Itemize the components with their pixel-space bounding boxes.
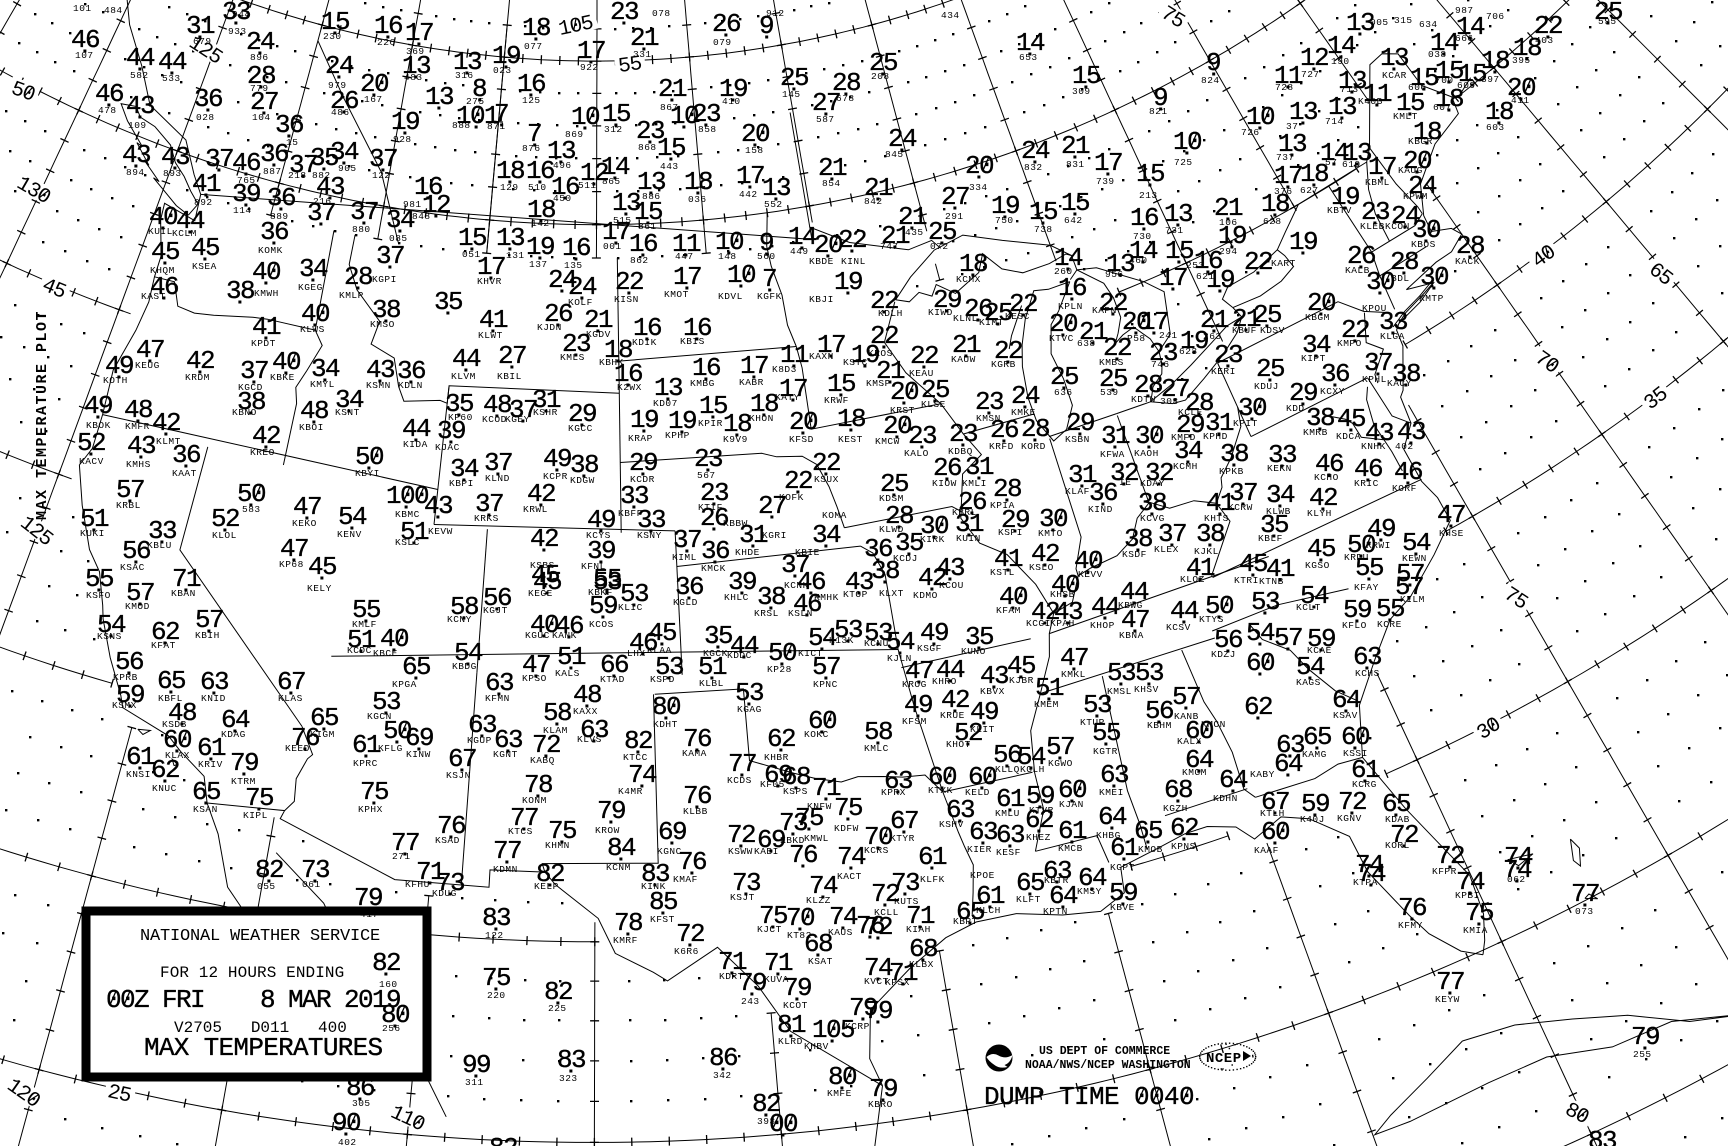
- svg-text:KCVG: KCVG: [1140, 513, 1165, 524]
- svg-text:148: 148: [718, 251, 737, 262]
- svg-text:KSBS: KSBS: [530, 560, 555, 571]
- svg-text:KBUF: KBUF: [1232, 325, 1257, 336]
- svg-text:KCHS: KCHS: [1355, 668, 1380, 679]
- svg-text:9: 9: [1206, 48, 1220, 78]
- svg-text:KBKF: KBKF: [588, 587, 613, 598]
- svg-text:073: 073: [1575, 906, 1594, 917]
- svg-text:636: 636: [1054, 387, 1073, 398]
- svg-text:57: 57: [1325, 157, 1337, 168]
- svg-text:896: 896: [250, 52, 269, 63]
- svg-text:KSMN: KSMN: [366, 380, 391, 391]
- svg-text:63: 63: [996, 820, 1024, 850]
- svg-text:KINL: KINL: [841, 256, 866, 267]
- svg-text:KINW: KINW: [406, 749, 431, 760]
- svg-text:18: 18: [684, 167, 712, 197]
- svg-text:23: 23: [949, 419, 977, 449]
- svg-text:KEED: KEED: [285, 743, 310, 754]
- svg-text:KRWF: KRWF: [824, 395, 849, 406]
- svg-text:46: 46: [232, 148, 260, 178]
- svg-text:KGCC: KGCC: [568, 423, 593, 434]
- svg-text:22: 22: [838, 225, 866, 255]
- svg-text:KMFR: KMFR: [125, 421, 150, 432]
- svg-text:KBKE: KBKE: [270, 372, 295, 383]
- svg-text:20: 20: [890, 377, 918, 407]
- svg-text:987: 987: [1455, 5, 1474, 16]
- svg-text:KNID: KNID: [201, 693, 226, 704]
- svg-text:KJDN: KJDN: [537, 322, 562, 333]
- svg-text:KAXX: KAXX: [573, 706, 598, 717]
- svg-text:37: 37: [673, 525, 701, 555]
- svg-text:KPHL: KPHL: [1362, 374, 1387, 385]
- svg-text:KLAM: KLAM: [543, 725, 568, 736]
- svg-text:18: 18: [837, 404, 865, 434]
- svg-text:79: 79: [1631, 1022, 1659, 1052]
- svg-text:KSBN: KSBN: [1065, 434, 1090, 445]
- svg-text:13: 13: [496, 223, 524, 253]
- svg-text:KHBR: KHBR: [764, 752, 789, 763]
- svg-text:KFAT: KFAT: [151, 640, 176, 651]
- svg-text:KTVC: KTVC: [1049, 333, 1074, 344]
- svg-text:271: 271: [392, 851, 411, 862]
- svg-text:00Z FRI 8 MAR 2019: 00Z FRI 8 MAR 2019: [106, 985, 400, 1015]
- svg-text:KONM: KONM: [522, 795, 547, 806]
- svg-text:KFLO: KFLO: [1342, 620, 1367, 631]
- svg-text:KDCA: KDCA: [1336, 431, 1361, 442]
- svg-text:KGUP: KGUP: [467, 735, 492, 746]
- svg-text:16: 16: [562, 233, 590, 263]
- svg-text:KCMH: KCMH: [1173, 461, 1198, 472]
- svg-text:K6R6: K6R6: [674, 946, 699, 957]
- svg-text:038: 038: [1428, 49, 1447, 60]
- svg-text:KMOB: KMOB: [1138, 844, 1163, 855]
- svg-text:KMLS: KMLS: [560, 352, 585, 363]
- svg-text:KCGI: KCGI: [1026, 618, 1051, 629]
- svg-text:933: 933: [228, 26, 247, 37]
- svg-text:KMLI: KMLI: [962, 478, 987, 489]
- svg-text:34: 34: [299, 254, 328, 284]
- svg-text:KELP: KELP: [534, 881, 559, 892]
- svg-text:K8D3: K8D3: [772, 364, 797, 375]
- svg-text:443: 443: [660, 161, 679, 172]
- svg-text:KPKB: KPKB: [1219, 466, 1244, 477]
- svg-text:739: 739: [1096, 176, 1115, 187]
- svg-text:868: 868: [638, 142, 657, 153]
- svg-text:KUKI: KUKI: [80, 528, 105, 539]
- svg-text:90: 90: [332, 1108, 360, 1138]
- svg-text:KMIA: KMIA: [1463, 925, 1488, 936]
- svg-text:KGCD: KGCD: [238, 382, 263, 393]
- svg-text:62: 62: [1244, 692, 1272, 722]
- svg-text:KDUG: KDUG: [432, 888, 457, 899]
- svg-text:67: 67: [890, 806, 918, 836]
- svg-text:KMBG: KMBG: [690, 378, 715, 389]
- svg-text:606: 606: [1408, 82, 1427, 93]
- svg-text:KBJI: KBJI: [809, 294, 834, 305]
- svg-text:30: 30: [1135, 421, 1163, 451]
- svg-text:KRKS: KRKS: [474, 513, 499, 524]
- svg-text:KSPD: KSPD: [650, 674, 675, 685]
- svg-text:61: 61: [918, 842, 947, 872]
- svg-text:KTRI: KTRI: [1234, 575, 1259, 586]
- svg-text:KHSB: KHSB: [1050, 589, 1075, 600]
- svg-text:KACT: KACT: [837, 871, 862, 882]
- svg-text:KIWD: KIWD: [928, 307, 953, 318]
- svg-text:P58: P58: [1127, 333, 1146, 344]
- svg-text:24: 24: [325, 51, 354, 81]
- svg-text:871: 871: [487, 121, 506, 132]
- svg-text:KTUP: KTUP: [1080, 717, 1105, 728]
- svg-text:KSWW: KSWW: [728, 846, 753, 857]
- svg-text:726: 726: [1241, 127, 1260, 138]
- svg-text:KCOS: KCOS: [589, 619, 614, 630]
- svg-text:KMWH: KMWH: [254, 288, 279, 299]
- svg-text:460: 460: [1129, 255, 1148, 266]
- svg-text:44: 44: [1091, 592, 1120, 622]
- svg-text:KOMK: KOMK: [258, 245, 283, 256]
- svg-text:KSNY: KSNY: [637, 530, 662, 541]
- svg-text:779: 779: [250, 83, 269, 94]
- svg-text:KSAD: KSAD: [435, 835, 460, 846]
- svg-text:609: 609: [1457, 80, 1476, 91]
- svg-text:KLNL: KLNL: [953, 313, 978, 324]
- svg-text:KCOT: KCOT: [783, 1000, 808, 1011]
- svg-text:44: 44: [452, 344, 481, 374]
- svg-text:26: 26: [712, 9, 740, 39]
- svg-text:KCRG: KCRG: [1352, 779, 1377, 790]
- svg-text:KFAM: KFAM: [996, 605, 1021, 616]
- svg-text:KCYS: KCYS: [586, 530, 611, 541]
- svg-text:KPNC: KPNC: [813, 679, 838, 690]
- svg-text:208: 208: [871, 71, 890, 82]
- svg-text:894: 894: [126, 167, 145, 178]
- svg-text:27: 27: [498, 341, 526, 371]
- svg-text:IE: IE: [1119, 477, 1131, 488]
- svg-text:552: 552: [764, 199, 783, 210]
- svg-text:KAGS: KAGS: [1296, 677, 1321, 688]
- svg-text:KBRL: KBRL: [952, 507, 977, 518]
- svg-text:137: 137: [529, 259, 548, 270]
- svg-text:KLOL: KLOL: [212, 530, 237, 541]
- svg-text:323: 323: [559, 1073, 578, 1084]
- svg-text:KDSM: KDSM: [879, 493, 904, 504]
- svg-text:20: 20: [965, 151, 993, 181]
- svg-text:KELD: KELD: [965, 787, 990, 798]
- svg-text:KLFT: KLFT: [1016, 894, 1041, 905]
- svg-text:956: 956: [1105, 269, 1124, 280]
- svg-text:KCDJ: KCDJ: [893, 553, 918, 564]
- svg-text:45: 45: [1337, 404, 1365, 434]
- svg-text:53: 53: [1251, 587, 1279, 617]
- svg-text:539: 539: [1100, 387, 1119, 398]
- svg-text:055: 055: [257, 881, 276, 892]
- svg-text:979: 979: [328, 80, 347, 91]
- svg-text:KHBV: KHBV: [804, 1041, 829, 1052]
- svg-text:KCHO: KCHO: [1314, 472, 1339, 483]
- svg-text:642: 642: [1064, 215, 1083, 226]
- svg-text:KHBG: KHBG: [1096, 830, 1121, 841]
- svg-text:KATY: KATY: [775, 392, 800, 403]
- svg-text:KBOI: KBOI: [299, 422, 324, 433]
- svg-text:KMEI: KMEI: [1099, 787, 1124, 798]
- svg-text:KGFK: KGFK: [757, 291, 782, 302]
- svg-text:74: 74: [837, 842, 866, 872]
- svg-text:560: 560: [757, 251, 776, 262]
- svg-text:99: 99: [462, 1050, 490, 1080]
- svg-text:109: 109: [128, 120, 147, 131]
- svg-text:KPDT: KPDT: [251, 338, 276, 349]
- svg-text:447: 447: [675, 251, 694, 262]
- svg-text:KGPI: KGPI: [372, 274, 397, 285]
- svg-text:65: 65: [192, 777, 220, 807]
- svg-text:72: 72: [676, 919, 704, 949]
- svg-text:KHSE: KHSE: [1439, 528, 1464, 539]
- svg-text:KLWT: KLWT: [478, 330, 503, 341]
- svg-text:KRDM: KRDM: [185, 372, 210, 383]
- svg-text:KPWM: KPWM: [1403, 191, 1428, 202]
- svg-text:KBGM: KBGM: [1305, 312, 1330, 323]
- svg-text:842: 842: [864, 196, 883, 207]
- svg-text:US DEPT OF COMMERCE: US DEPT OF COMMERCE: [1039, 1045, 1170, 1058]
- svg-text:638: 638: [1077, 338, 1096, 349]
- svg-text:905: 905: [338, 163, 357, 174]
- svg-text:KIRK: KIRK: [920, 534, 945, 545]
- svg-text:44: 44: [126, 43, 155, 73]
- svg-text:KEAU: KEAU: [909, 368, 934, 379]
- svg-text:KLVM: KLVM: [451, 371, 476, 382]
- svg-text:KPBI: KPBI: [1455, 890, 1480, 901]
- svg-text:79: 79: [597, 796, 625, 826]
- svg-text:KCNU: KCNU: [864, 638, 889, 649]
- svg-text:30: 30: [1366, 267, 1394, 297]
- svg-text:397: 397: [1481, 74, 1500, 85]
- svg-text:KDGW: KDGW: [570, 475, 595, 486]
- svg-text:583: 583: [242, 504, 261, 515]
- svg-text:K40J: K40J: [1300, 814, 1325, 825]
- svg-text:KCNM: KCNM: [606, 862, 631, 873]
- svg-text:KRBL: KRBL: [116, 500, 141, 511]
- svg-text:KRFD: KRFD: [989, 441, 1014, 452]
- svg-text:65: 65: [1134, 816, 1162, 846]
- svg-text:KPTN: KPTN: [1043, 906, 1068, 917]
- svg-text:KGLD: KGLD: [673, 597, 698, 608]
- svg-text:77: 77: [493, 836, 521, 866]
- svg-text:062: 062: [1507, 874, 1526, 885]
- svg-text:83: 83: [557, 1045, 585, 1075]
- svg-text:KIAH: KIAH: [906, 924, 931, 935]
- svg-text:KPLN: KPLN: [1058, 301, 1083, 312]
- svg-text:369: 369: [406, 46, 425, 57]
- svg-text:10: 10: [727, 260, 755, 290]
- svg-text:15: 15: [1136, 159, 1164, 189]
- svg-text:28: 28: [344, 262, 372, 292]
- svg-text:KCMX: KCMX: [956, 274, 981, 285]
- svg-text:KMCW: KMCW: [875, 436, 900, 447]
- svg-text:KRIC: KRIC: [1354, 478, 1379, 489]
- svg-text:KCLE: KCLE: [1178, 407, 1203, 418]
- svg-text:KUIL: KUIL: [148, 226, 173, 237]
- svg-text:243: 243: [741, 996, 760, 1007]
- svg-text:K9V9: K9V9: [723, 434, 748, 445]
- svg-text:KDVL: KDVL: [718, 291, 743, 302]
- svg-text:KHSV: KHSV: [1134, 684, 1159, 695]
- svg-text:085: 085: [389, 233, 408, 244]
- svg-text:KLMT: KLMT: [156, 436, 181, 447]
- svg-text:40: 40: [252, 257, 280, 287]
- svg-text:KMKE: KMKE: [1011, 407, 1036, 418]
- svg-text:129: 129: [500, 182, 519, 193]
- svg-text:831: 831: [1066, 159, 1085, 170]
- svg-text:KFLG: KFLG: [378, 743, 403, 754]
- svg-text:42: 42: [530, 524, 558, 554]
- svg-text:38: 38: [226, 276, 254, 306]
- svg-text:KMGM: KMGM: [1182, 767, 1207, 778]
- svg-text:KSTL: KSTL: [990, 567, 1015, 578]
- svg-text:028: 028: [196, 112, 215, 123]
- svg-text:17: 17: [1159, 263, 1187, 293]
- svg-text:KMTP: KMTP: [1419, 293, 1444, 304]
- svg-text:678: 678: [836, 93, 855, 104]
- svg-text:225: 225: [548, 1003, 567, 1014]
- svg-text:KLRD: KLRD: [778, 1036, 803, 1047]
- svg-text:41: 41: [192, 169, 221, 199]
- svg-text:KPIA: KPIA: [990, 500, 1015, 511]
- svg-text:75: 75: [1465, 898, 1493, 928]
- svg-text:17: 17: [405, 18, 433, 48]
- svg-text:483: 483: [404, 72, 423, 83]
- svg-text:KJAC: KJAC: [435, 442, 460, 453]
- svg-text:KSNS: KSNS: [97, 631, 122, 642]
- svg-text:241: 241: [1159, 330, 1178, 341]
- svg-text:KSJT: KSJT: [730, 892, 755, 903]
- svg-text:610: 610: [1342, 159, 1361, 170]
- svg-text:KMYL: KMYL: [310, 379, 335, 390]
- svg-text:122: 122: [485, 930, 504, 941]
- svg-text:KRST: KRST: [890, 405, 915, 416]
- svg-text:449: 449: [790, 246, 809, 257]
- svg-text:KLOZ: KLOZ: [1180, 574, 1205, 585]
- svg-text:KIGM: KIGM: [310, 729, 335, 740]
- svg-text:922: 922: [580, 62, 599, 73]
- svg-text:KSPS: KSPS: [783, 786, 808, 797]
- svg-text:KBWG: KBWG: [1118, 600, 1143, 611]
- svg-text:218: 218: [288, 170, 307, 181]
- svg-text:KSTC: KSTC: [843, 357, 868, 368]
- svg-text:510: 510: [528, 182, 547, 193]
- svg-text:KUVA: KUVA: [764, 974, 789, 985]
- svg-text:KORL: KORL: [1385, 840, 1410, 851]
- svg-text:KCAR: KCAR: [1382, 70, 1407, 81]
- svg-text:KMEM: KMEM: [1034, 699, 1059, 710]
- svg-text:KBPT: KBPT: [953, 916, 978, 927]
- svg-text:KDAB: KDAB: [1385, 814, 1410, 825]
- svg-text:KMLT: KMLT: [1393, 111, 1418, 122]
- svg-text:KSHV: KSHV: [939, 819, 964, 830]
- svg-text:KGPT: KGPT: [1110, 862, 1135, 873]
- svg-text:38: 38: [1220, 439, 1248, 469]
- svg-text:746: 746: [1151, 359, 1170, 370]
- svg-text:KBIL: KBIL: [497, 371, 522, 382]
- svg-text:KNUC: KNUC: [152, 783, 177, 794]
- svg-text:KSAT: KSAT: [808, 956, 833, 967]
- svg-text:KPIT: KPIT: [1233, 418, 1258, 429]
- svg-text:587: 587: [816, 114, 835, 125]
- svg-text:KDUJ: KDUJ: [1254, 381, 1279, 392]
- svg-text:334: 334: [969, 182, 988, 193]
- svg-text:KTXK: KTXK: [928, 785, 953, 796]
- svg-text:KRIV: KRIV: [198, 759, 223, 770]
- svg-text:533: 533: [162, 73, 181, 84]
- svg-text:KENV: KENV: [337, 529, 362, 540]
- svg-text:311: 311: [465, 1077, 484, 1088]
- svg-text:KDRT: KDRT: [719, 971, 744, 982]
- svg-text:125: 125: [522, 95, 541, 106]
- svg-text:25: 25: [1256, 354, 1284, 384]
- svg-text:13: 13: [1380, 43, 1408, 73]
- svg-text:KMBS: KMBS: [1099, 357, 1124, 368]
- svg-text:KCOU: KCOU: [939, 580, 964, 591]
- svg-text:484: 484: [104, 5, 123, 16]
- svg-text:KF05: KF05: [760, 779, 785, 790]
- svg-text:19: 19: [526, 232, 554, 262]
- svg-text:KRWI: KRWI: [1366, 540, 1391, 551]
- svg-text:KCDS: KCDS: [727, 775, 752, 786]
- svg-text:KBHM: KBHM: [1147, 720, 1172, 731]
- svg-text:305: 305: [352, 1098, 371, 1109]
- svg-text:49: 49: [543, 444, 571, 474]
- svg-text:KNSI: KNSI: [126, 769, 151, 780]
- svg-text:45: 45: [648, 618, 676, 648]
- svg-text:KMRB: KMRB: [1303, 427, 1328, 438]
- svg-text:MAX TEMPERATURES: MAX TEMPERATURES: [144, 1033, 383, 1063]
- svg-text:315: 315: [1394, 15, 1413, 26]
- svg-text:KOFK: KOFK: [779, 492, 804, 503]
- svg-text:KLWD: KLWD: [879, 524, 904, 535]
- svg-text:KABI: KABI: [754, 846, 779, 857]
- svg-text:KDBQ: KDBQ: [948, 446, 973, 457]
- svg-text:47: 47: [1437, 500, 1465, 530]
- svg-text:KDMN: KDMN: [493, 864, 518, 875]
- svg-text:889: 889: [270, 211, 289, 222]
- svg-text:303: 303: [1160, 396, 1179, 407]
- svg-text:KGJT: KGJT: [483, 605, 508, 616]
- svg-text:KSHR: KSHR: [533, 407, 558, 418]
- svg-text:854: 854: [822, 178, 841, 189]
- svg-text:KBIE: KBIE: [795, 547, 820, 558]
- svg-text:627: 627: [1300, 185, 1319, 196]
- svg-text:KRWL: KRWL: [523, 504, 548, 515]
- svg-text:KMSL: KMSL: [1107, 686, 1132, 697]
- svg-text:KDD: KDD: [1286, 403, 1305, 414]
- svg-text:19: 19: [834, 267, 862, 297]
- svg-text:KBIH: KBIH: [195, 630, 220, 641]
- svg-text:001: 001: [603, 241, 622, 252]
- svg-text:KBVX: KBVX: [980, 686, 1005, 697]
- svg-text:KBNO: KBNO: [232, 407, 257, 418]
- svg-text:KOTH: KOTH: [103, 375, 128, 386]
- svg-text:KALB: KALB: [1345, 265, 1370, 276]
- svg-text:KCDR: KCDR: [630, 474, 655, 485]
- svg-text:KBAN: KBAN: [171, 588, 196, 599]
- svg-text:42: 42: [152, 408, 180, 438]
- svg-text:58: 58: [543, 698, 571, 728]
- svg-text:17: 17: [673, 262, 701, 292]
- svg-text:KRDU: KRDU: [1344, 552, 1369, 563]
- svg-text:KGNV: KGNV: [1337, 813, 1362, 824]
- svg-text:892: 892: [194, 197, 213, 208]
- svg-text:KACK: KACK: [1455, 256, 1480, 267]
- svg-text:411: 411: [1511, 95, 1530, 106]
- svg-text:KP68: KP68: [279, 559, 304, 570]
